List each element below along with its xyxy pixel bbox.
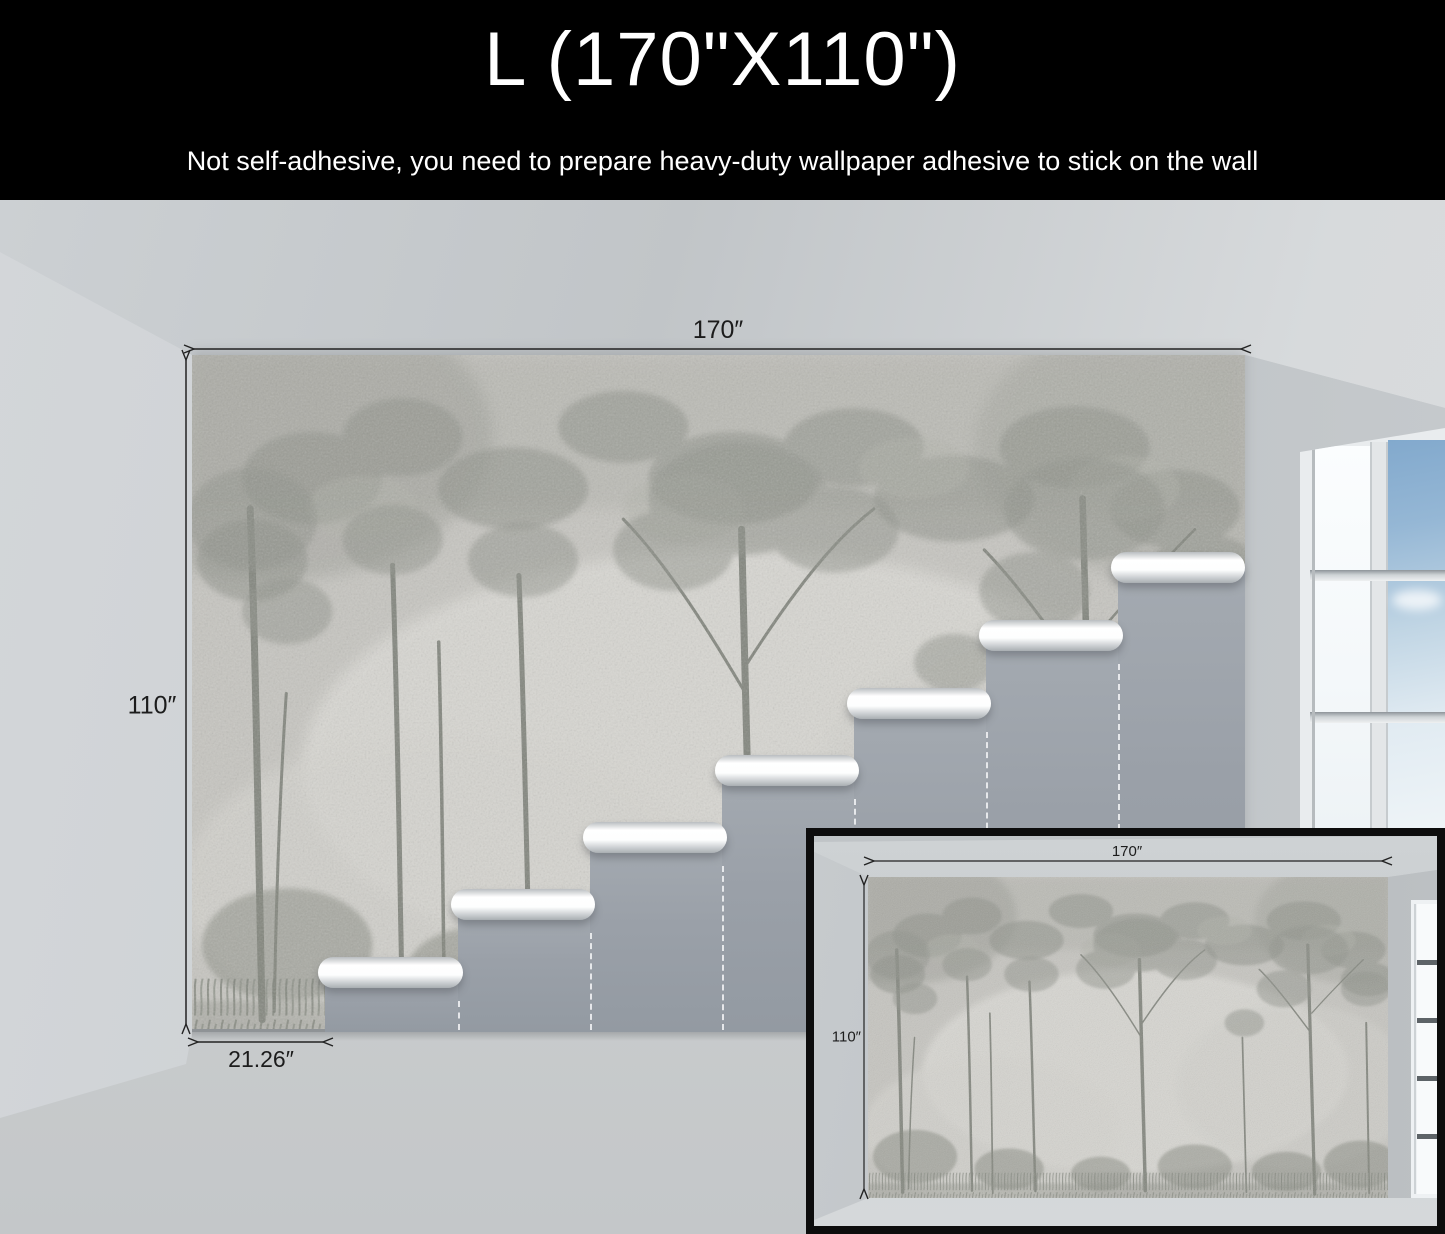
inset-width-dimension-label: 170″ [1112,843,1142,860]
stair-tread-roll [583,822,727,853]
panel-seam [590,933,592,1030]
size-title: L (170"X110") [484,16,961,103]
inset-mural-wall [868,877,1388,1198]
stair-tread-roll [1111,552,1245,583]
stair-riser-panel [458,905,590,1032]
inset-window [1411,900,1437,1198]
inset-forest-mural [868,877,1388,1198]
stair-tread-roll [318,957,463,988]
stair-tread-roll [979,620,1123,651]
stair-tread-roll [847,688,991,719]
header-banner: L (170"X110") Not self-adhesive, you nee… [0,0,1445,200]
inset-window-glazing-bar [1417,1134,1437,1139]
inset-window-glazing-bar [1417,1076,1437,1081]
width-dimension-label: 170″ [693,316,744,345]
inset-preview: 170″ 110″ [806,828,1445,1234]
stair-tread-roll [451,889,595,920]
room-view: 170″ 110″ 21.26″ [0,200,1445,1234]
panel-seam [458,1001,460,1030]
inset-window-glazing-bar [1417,1018,1437,1023]
panel-width-dimension-label: 21.26″ [228,1046,294,1073]
inset-window-glazing-bar [1417,960,1437,965]
stair-riser-panel [590,838,722,1032]
adhesive-note: Not self-adhesive, you need to prepare h… [187,146,1259,177]
inset-height-dimension-label: 110″ [832,1029,861,1046]
panel-seam [722,866,724,1030]
stair-tread-roll [715,755,859,786]
height-dimension-label: 110″ [128,692,177,721]
inset-room-view: 170″ 110″ [814,836,1437,1226]
inset-window-pane [1417,904,1437,1194]
product-size-image: L (170"X110") Not self-adhesive, you nee… [0,0,1445,1234]
inset-window-frame-edge [1414,904,1416,1194]
